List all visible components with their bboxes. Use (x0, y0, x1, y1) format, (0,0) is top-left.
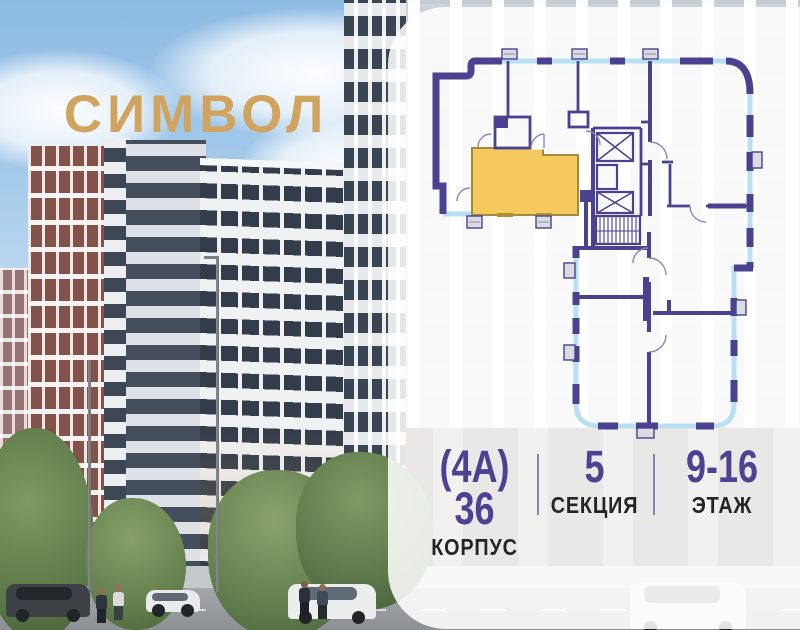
floors-info-block: 9-16 ЭТАЖ (652, 446, 792, 517)
car (146, 590, 200, 612)
street-lamp-pole (88, 360, 91, 592)
floors-label: ЭТАЖ (662, 493, 782, 517)
project-logo: СИМВОЛ (58, 88, 334, 141)
pedestrian (96, 588, 107, 624)
pedestrian (317, 584, 328, 624)
street-lamp-arm (204, 256, 219, 259)
car (6, 584, 90, 617)
pedestrian (113, 585, 124, 623)
elevator-icon (597, 133, 633, 213)
building-number: (4А) 36 (420, 446, 530, 530)
pedestrian (299, 581, 310, 623)
section-number: 5 (549, 446, 641, 488)
highlighted-apartment[interactable] (472, 148, 578, 217)
floor-plan (405, 42, 800, 442)
apartment-card: СИМВОЛ (0, 0, 800, 630)
floors-range: 9-16 (666, 446, 778, 488)
building-label: КОРПУС (416, 535, 534, 559)
section-label: СЕКЦИЯ (545, 493, 644, 517)
stairs-icon (596, 216, 640, 244)
section-info-block: 5 СЕКЦИЯ (537, 446, 652, 517)
building-info-block: (4А) 36 КОРПУС (406, 446, 543, 559)
street-lamp-pole (216, 256, 219, 592)
